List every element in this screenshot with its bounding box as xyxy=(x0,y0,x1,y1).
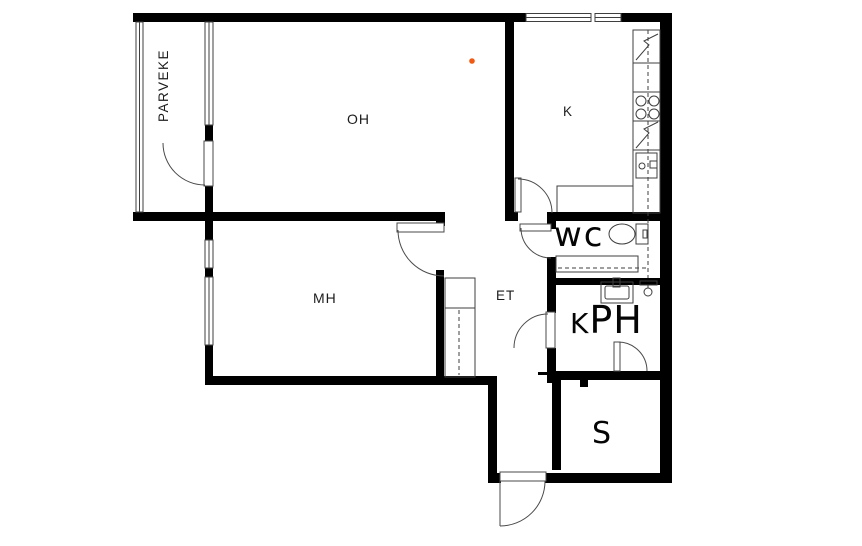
floor-plan: PARVEKE OH K MH ET WC KPH S xyxy=(0,0,862,546)
wardrobe-symbol xyxy=(445,278,475,377)
kitchen-window-symbol xyxy=(526,14,621,22)
wall-mh-right xyxy=(436,270,444,378)
kitchen-counter-l xyxy=(557,186,633,212)
wc-counter xyxy=(556,256,648,272)
room-label-oh: OH xyxy=(347,112,370,126)
wc-door-arc xyxy=(520,224,551,258)
room-label-kph: KPH xyxy=(570,301,643,339)
room-label-parveke: PARVEKE xyxy=(157,49,171,122)
room-label-s: S xyxy=(592,419,611,449)
wall-top-left xyxy=(133,13,526,22)
orange-marker-dot xyxy=(469,58,475,64)
room-label-mh: MH xyxy=(313,291,337,305)
wall-mh-window-mullion xyxy=(205,268,213,277)
dishwasher-symbol xyxy=(636,122,658,148)
kitchen-sink-symbol xyxy=(636,153,657,178)
balcony-glazing-left-symbol xyxy=(136,22,143,212)
kitchen-door-arc xyxy=(515,178,552,213)
fridge-symbol xyxy=(636,34,658,60)
wall-balcony-right-b xyxy=(205,186,213,214)
entrance-door-arc xyxy=(500,472,546,526)
floor-plan-drawing xyxy=(0,0,862,546)
sauna-door-arc xyxy=(614,342,647,371)
mh-window-symbol xyxy=(205,240,213,345)
wall-et-west xyxy=(488,380,497,475)
room-label-k: K xyxy=(563,105,573,119)
mh-door-arc xyxy=(397,223,444,276)
wall-bottom-stub xyxy=(488,473,501,483)
toilet-symbol xyxy=(609,224,648,244)
wall-oh-k xyxy=(505,13,514,220)
kph-door-arc xyxy=(514,312,555,348)
balcony-window-right-symbol xyxy=(205,22,213,125)
wall-bottom xyxy=(545,473,672,483)
room-label-wc: WC xyxy=(554,218,605,252)
wall-k-bottom-stub xyxy=(505,212,518,221)
wall-balcony-right-a xyxy=(205,125,213,142)
wall-kph-s xyxy=(547,371,672,380)
room-label-et: ET xyxy=(496,289,515,303)
wall-right xyxy=(660,13,672,483)
wall-marker-tick xyxy=(538,372,550,375)
balcony-door-arc xyxy=(163,141,213,186)
wall-mh-left-a xyxy=(205,221,213,240)
wall-mh-left-b xyxy=(205,345,213,378)
wall-marker-blob xyxy=(580,380,588,387)
wall-s-left xyxy=(552,380,561,470)
wall-oh-mh xyxy=(133,212,445,221)
